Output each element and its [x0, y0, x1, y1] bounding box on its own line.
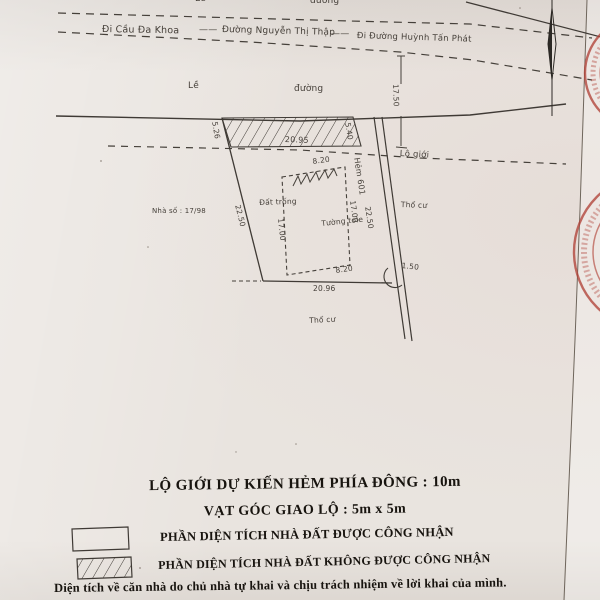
sidewalk-label: Lề	[188, 82, 199, 91]
setback-label: Lộ giới	[400, 150, 430, 160]
road-width-dim: 17.50	[392, 84, 400, 107]
zigzag-mark	[293, 169, 337, 186]
house-number-label: Nhà số : 17/98	[152, 208, 206, 215]
legend-box-not-recognized	[77, 557, 132, 579]
house-depth-left-dim: 17.00	[277, 218, 287, 241]
road-label: đường	[294, 85, 323, 94]
land-type-bottom-label: Thổ cư	[309, 316, 336, 325]
street-dashed-line-lower	[58, 32, 592, 80]
direction-separator-left: ——	[199, 26, 217, 35]
strip-left-dim: 5.26	[211, 121, 221, 140]
legend-box-recognized	[72, 527, 129, 551]
land-type-right-label: Thổ cư	[401, 201, 428, 209]
setback-dashed-line	[108, 146, 566, 164]
road-label-top: đường	[310, 0, 339, 6]
road-edge-diagonal	[466, 2, 600, 37]
empty-land-label: Đất trống	[259, 198, 297, 207]
scanned-survey-document: Lề đường Đi Cầu Đa Khoa —— Đường Nguyễn …	[0, 0, 600, 600]
strip-width-dim: 20.95	[285, 136, 309, 145]
corner-cut-dim: 1.50	[401, 262, 419, 271]
sidewalk-label-top: Lề	[195, 0, 206, 4]
direction-separator-right: ——	[331, 30, 349, 39]
house-depth-right-dim: 17.00	[349, 200, 360, 223]
north-arrow-icon	[548, 0, 556, 116]
strip-right-dim: 5.40	[344, 122, 354, 141]
direction-label-left: Đi Cầu Đa Khoa	[102, 25, 180, 36]
corner-cut-arc	[384, 268, 402, 288]
parcel-bottom-edge	[263, 281, 392, 283]
parcel-bottom-dim: 20.96	[313, 285, 335, 293]
